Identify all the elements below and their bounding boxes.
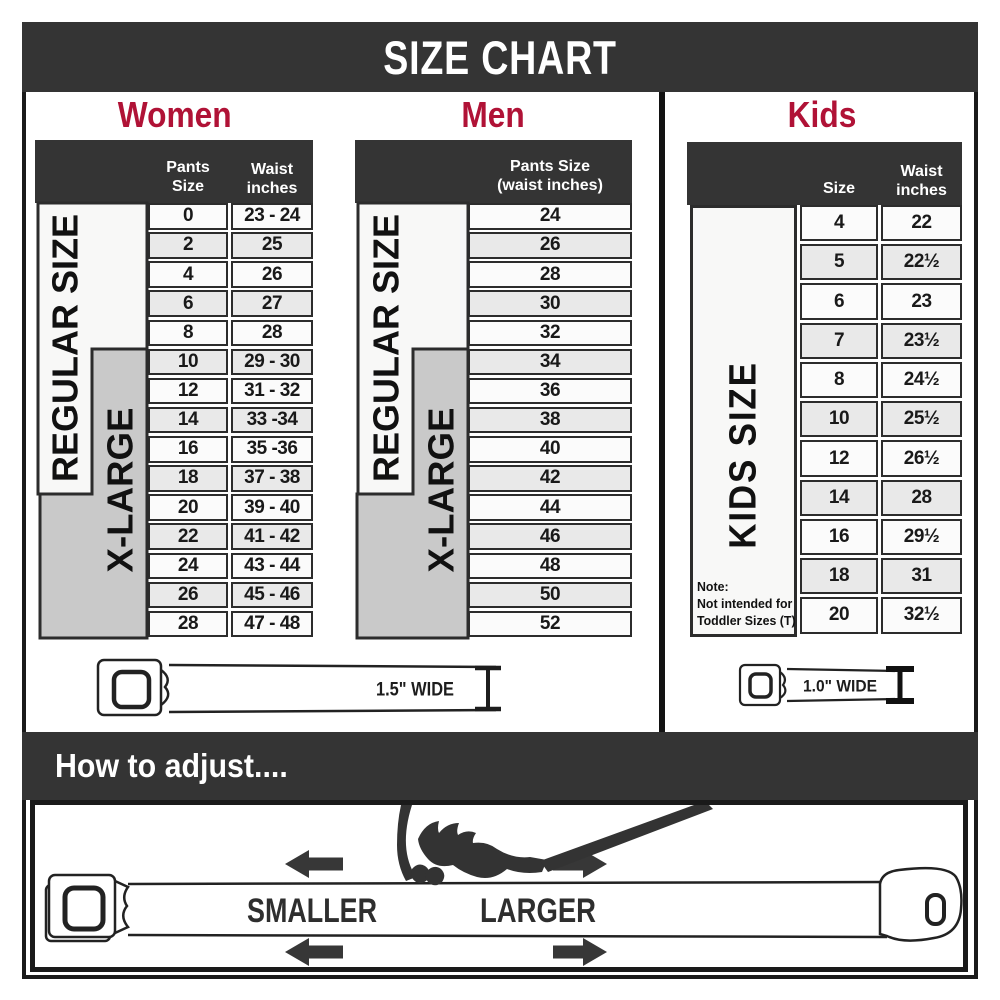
table-row: 1428 <box>800 480 962 516</box>
arrow-left-icon <box>285 938 343 966</box>
table-row: 2039 - 40 <box>148 494 313 521</box>
waist-cell: 26 <box>231 261 313 288</box>
kids-belt-width-label: 1.0" WIDE <box>803 677 877 696</box>
waist-cell: 45 - 46 <box>231 582 313 609</box>
size-cell: 16 <box>800 519 878 555</box>
kids-size-header: Size <box>800 180 878 198</box>
table-row: 24 <box>468 203 632 230</box>
kids-waist-header-line2: inches <box>881 182 962 200</box>
kids-belt-illustration: 1.0" WIDE <box>735 655 930 710</box>
table-row: 36 <box>468 378 632 405</box>
size-cell: 20 <box>800 597 878 633</box>
table-row: 52 <box>468 611 632 638</box>
waist-cell: 29½ <box>881 519 962 555</box>
waist-cell: 22 <box>881 205 962 241</box>
table-row: 34 <box>468 349 632 376</box>
waist-cell: 31 - 32 <box>231 378 313 405</box>
pants-size-cell: 8 <box>148 320 228 347</box>
table-row: 1635 -36 <box>148 436 313 463</box>
pants-size-cell: 38 <box>468 407 632 434</box>
table-row: 44 <box>468 494 632 521</box>
waist-cell: 32½ <box>881 597 962 633</box>
adult-belt-width-label: 1.5" WIDE <box>376 680 454 701</box>
table-row: 627 <box>148 290 313 317</box>
waist-cell: 28 <box>231 320 313 347</box>
pants-size-cell: 24 <box>468 203 632 230</box>
kids-size-box: KIDS SIZE Note: Not intended for Toddler… <box>690 205 797 637</box>
pants-size-cell: 24 <box>148 553 228 580</box>
pants-size-cell: 50 <box>468 582 632 609</box>
waist-cell: 25½ <box>881 401 962 437</box>
belt-tip <box>880 868 961 940</box>
women-regular-label: REGULAR SIZE <box>45 214 86 482</box>
men-size-band: REGULAR SIZE X-LARGE <box>355 200 470 642</box>
women-heading: Women <box>90 94 260 134</box>
pants-size-cell: 46 <box>468 523 632 550</box>
waist-cell: 47 - 48 <box>231 611 313 638</box>
waist-cell: 31 <box>881 558 962 594</box>
table-row: 26 <box>468 232 632 259</box>
pants-size-cell: 26 <box>468 232 632 259</box>
table-row: 38 <box>468 407 632 434</box>
waist-cell: 39 - 40 <box>231 494 313 521</box>
pants-size-cell: 6 <box>148 290 228 317</box>
pants-size-cell: 0 <box>148 203 228 230</box>
men-table: 24 26 28 30 32 34 36 38 40 42 44 46 48 5… <box>468 203 632 640</box>
table-row: 1231 - 32 <box>148 378 313 405</box>
pants-size-cell: 22 <box>148 523 228 550</box>
table-row: 2443 - 44 <box>148 553 313 580</box>
width-ibeam-icon <box>475 668 501 709</box>
table-row: 522½ <box>800 244 962 280</box>
table-row: 28 <box>468 261 632 288</box>
kids-size-label: KIDS SIZE <box>722 361 765 549</box>
pants-size-cell: 14 <box>148 407 228 434</box>
waist-cell: 26½ <box>881 440 962 476</box>
pants-size-cell: 44 <box>468 494 632 521</box>
section-divider <box>659 92 665 732</box>
table-row: 623 <box>800 283 962 319</box>
adult-belt-illustration: 1.5" WIDE <box>95 650 505 720</box>
pants-size-cell: 48 <box>468 553 632 580</box>
table-row: 1837 - 38 <box>148 465 313 492</box>
waist-cell: 24½ <box>881 362 962 398</box>
pants-size-cell: 10 <box>148 349 228 376</box>
pants-size-cell: 12 <box>148 378 228 405</box>
waist-cell: 35 -36 <box>231 436 313 463</box>
table-row: 2847 - 48 <box>148 611 313 638</box>
size-cell: 7 <box>800 323 878 359</box>
waist-cell: 33 -34 <box>231 407 313 434</box>
kids-waist-header-line1: Waist <box>881 163 962 181</box>
men-xlarge-label: X-LARGE <box>421 408 462 573</box>
women-xlarge-label: X-LARGE <box>100 408 141 573</box>
kids-waist-header: Waist inches <box>881 163 962 200</box>
table-row: 48 <box>468 553 632 580</box>
table-row: 50 <box>468 582 632 609</box>
larger-label: LARGER <box>480 892 596 930</box>
pants-size-cell: 32 <box>468 320 632 347</box>
men-pants-size-header: Pants Size (waist inches) <box>468 158 632 195</box>
table-row: 32 <box>468 320 632 347</box>
women-waist-header-line1: Waist <box>231 161 313 179</box>
width-ibeam-icon <box>886 669 914 701</box>
table-row: 1433 -34 <box>148 407 313 434</box>
arrow-left-icon <box>285 850 343 878</box>
table-row: 40 <box>468 436 632 463</box>
table-row: 1629½ <box>800 519 962 555</box>
size-chart-infographic: SIZE CHART Women Men Kids Pants Size Wai… <box>0 0 1000 1000</box>
table-row: 2032½ <box>800 597 962 633</box>
waist-cell: 23 <box>881 283 962 319</box>
waist-cell: 23½ <box>881 323 962 359</box>
pants-size-cell: 28 <box>468 261 632 288</box>
page-title: SIZE CHART <box>383 30 617 85</box>
table-row: 828 <box>148 320 313 347</box>
pants-size-cell: 34 <box>468 349 632 376</box>
table-row: 1226½ <box>800 440 962 476</box>
table-row: 30 <box>468 290 632 317</box>
table-row: 1025½ <box>800 401 962 437</box>
table-row: 422 <box>800 205 962 241</box>
size-cell: 4 <box>800 205 878 241</box>
pants-size-cell: 40 <box>468 436 632 463</box>
men-heading: Men <box>408 94 578 134</box>
size-cell: 10 <box>800 401 878 437</box>
pants-size-cell: 2 <box>148 232 228 259</box>
kids-note-line3: Toddler Sizes (T) <box>697 613 796 630</box>
size-cell: 12 <box>800 440 878 476</box>
arrow-right-icon <box>553 938 607 966</box>
women-size-band: REGULAR SIZE X-LARGE <box>35 200 150 642</box>
waist-cell: 37 - 38 <box>231 465 313 492</box>
table-row: 824½ <box>800 362 962 398</box>
smaller-label: SMALLER <box>247 892 377 930</box>
pants-size-cell: 42 <box>468 465 632 492</box>
kids-note-line1: Note: <box>697 579 796 596</box>
size-cell: 14 <box>800 480 878 516</box>
women-waist-header: Waist inches <box>231 161 313 198</box>
waist-cell: 23 - 24 <box>231 203 313 230</box>
table-row: 023 - 24 <box>148 203 313 230</box>
pants-size-cell: 28 <box>148 611 228 638</box>
pants-size-cell: 4 <box>148 261 228 288</box>
waist-cell: 27 <box>231 290 313 317</box>
women-pants-size-header: Pants Size <box>148 159 228 196</box>
table-row: 2645 - 46 <box>148 582 313 609</box>
adjust-band: How to adjust.... <box>22 732 978 800</box>
pants-size-cell: 18 <box>148 465 228 492</box>
men-regular-label: REGULAR SIZE <box>366 214 407 482</box>
kids-table: 422 522½ 623 723½ 824½ 1025½ 1226½ 1428 … <box>800 205 962 637</box>
table-row: 1831 <box>800 558 962 594</box>
table-row: 723½ <box>800 323 962 359</box>
waist-cell: 25 <box>231 232 313 259</box>
adjust-heading: How to adjust.... <box>55 747 288 785</box>
kids-table-header: Size Waist inches <box>687 142 962 205</box>
waist-cell: 43 - 44 <box>231 553 313 580</box>
waist-cell: 29 - 30 <box>231 349 313 376</box>
men-table-header: Pants Size (waist inches) <box>355 140 632 203</box>
table-row: 1029 - 30 <box>148 349 313 376</box>
size-cell: 18 <box>800 558 878 594</box>
pants-size-cell: 20 <box>148 494 228 521</box>
table-row: 225 <box>148 232 313 259</box>
table-row: 46 <box>468 523 632 550</box>
waist-cell: 22½ <box>881 244 962 280</box>
table-row: 2241 - 42 <box>148 523 313 550</box>
size-cell: 5 <box>800 244 878 280</box>
seatbelt-buckle-icon <box>46 875 128 941</box>
kids-note: Note: Not intended for Toddler Sizes (T) <box>697 579 796 630</box>
pants-size-cell: 52 <box>468 611 632 638</box>
waist-cell: 28 <box>881 480 962 516</box>
howto-belt-illustration: SMALLER LARGER <box>35 805 963 968</box>
seatbelt-buckle-icon <box>98 660 168 715</box>
table-row: 42 <box>468 465 632 492</box>
hand-pulling-strap-icon <box>397 805 713 885</box>
men-header-line1: Pants Size <box>468 158 632 176</box>
pants-size-cell: 26 <box>148 582 228 609</box>
kids-heading: Kids <box>737 94 907 134</box>
women-table-header: Pants Size Waist inches <box>35 140 313 203</box>
seatbelt-buckle-icon <box>740 665 785 705</box>
table-row: 426 <box>148 261 313 288</box>
kids-note-line2: Not intended for <box>697 596 796 613</box>
women-waist-header-line2: inches <box>231 180 313 198</box>
size-cell: 8 <box>800 362 878 398</box>
pants-size-cell: 30 <box>468 290 632 317</box>
waist-cell: 41 - 42 <box>231 523 313 550</box>
howto-illustration-box: SMALLER LARGER <box>30 800 968 972</box>
pants-size-cell: 36 <box>468 378 632 405</box>
women-table: 023 - 24 225 426 627 828 1029 - 30 1231 … <box>148 203 313 640</box>
pants-size-cell: 16 <box>148 436 228 463</box>
men-header-line2: (waist inches) <box>468 177 632 195</box>
title-band: SIZE CHART <box>22 22 978 92</box>
size-cell: 6 <box>800 283 878 319</box>
